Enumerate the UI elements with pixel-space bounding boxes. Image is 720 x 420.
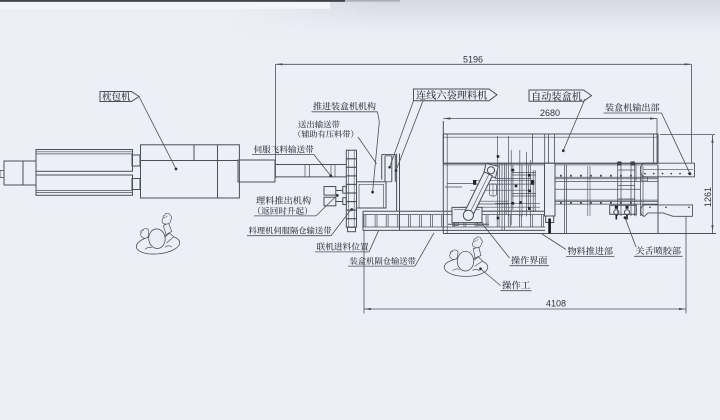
svg-text:1261: 1261	[703, 187, 713, 207]
svg-text:2680: 2680	[540, 108, 560, 118]
svg-text:4108: 4108	[546, 299, 566, 309]
svg-text:5196: 5196	[463, 55, 483, 65]
